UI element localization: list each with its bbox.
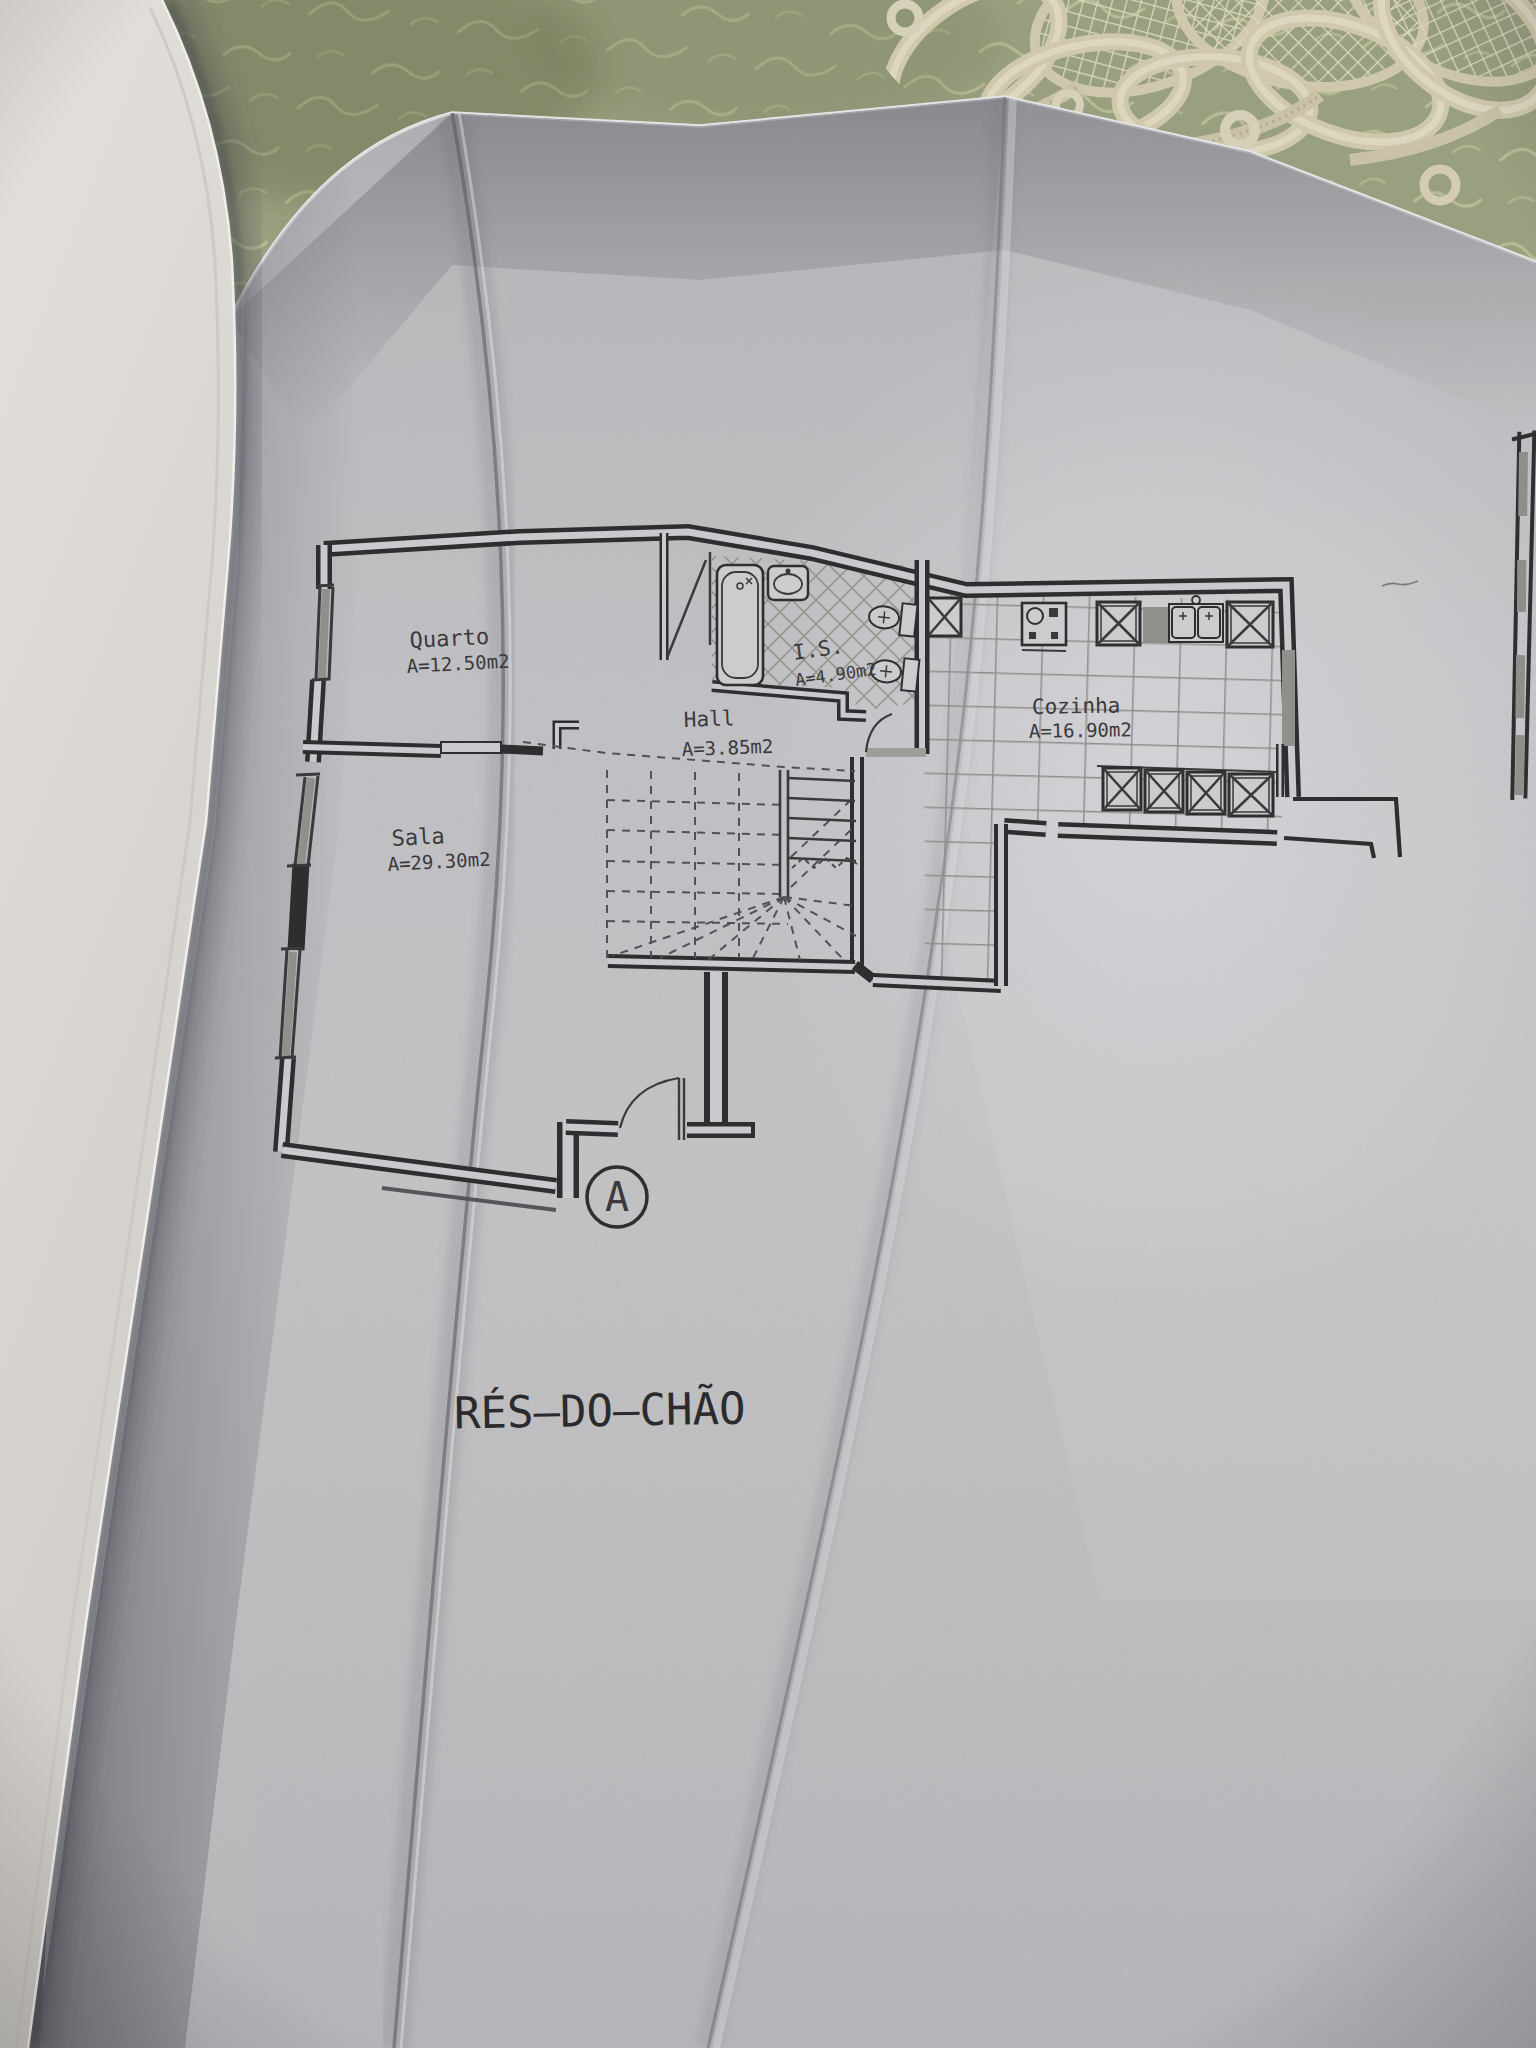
photo-vignette [0, 0, 1536, 2048]
photo-floor-plan-scene: Quarto A=12.50m2 Sala A=29.30m2 Hall A=3… [0, 0, 1536, 2048]
